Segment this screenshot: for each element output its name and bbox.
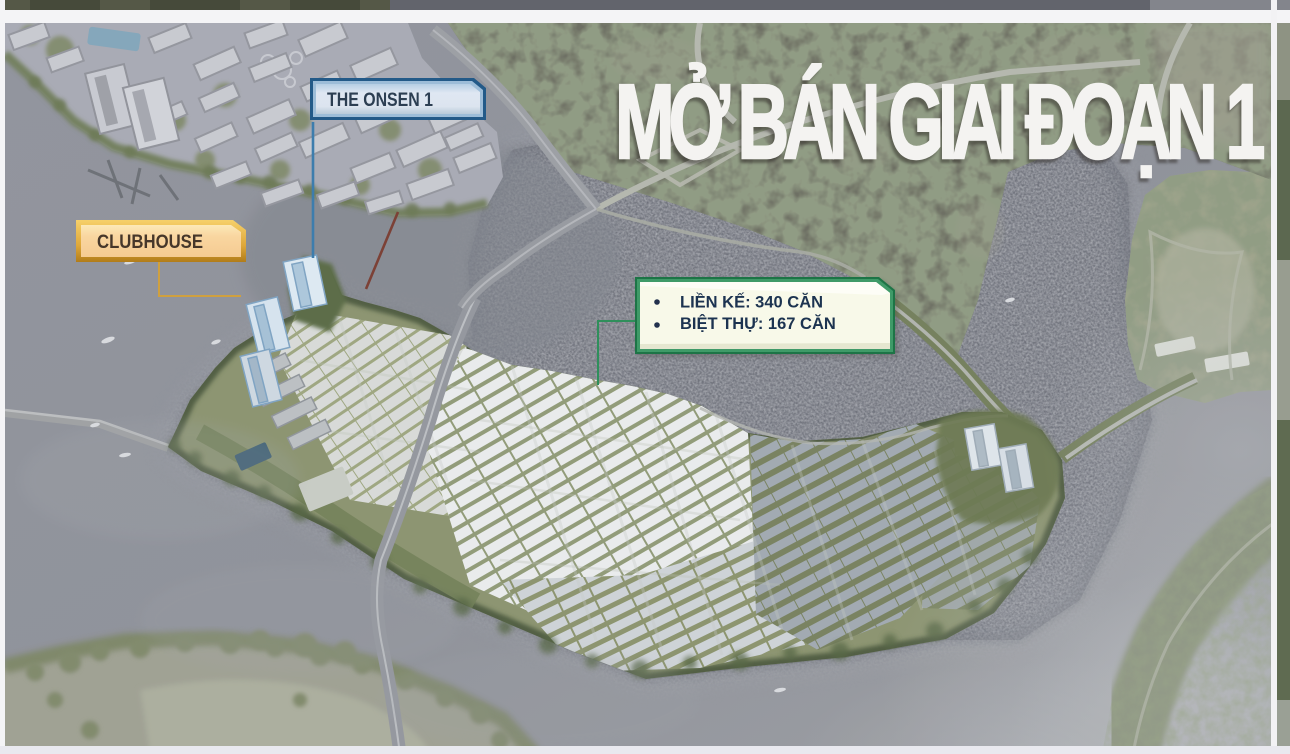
svg-text:CLUBHOUSE: CLUBHOUSE [97, 232, 203, 253]
svg-text:LIỀN KẾ: 340 CĂN: LIỀN KẾ: 340 CĂN [680, 293, 823, 312]
svg-text:THE ONSEN 1: THE ONSEN 1 [327, 90, 433, 111]
svg-text:BIỆT THỰ: 167 CĂN: BIỆT THỰ: 167 CĂN [680, 314, 836, 333]
